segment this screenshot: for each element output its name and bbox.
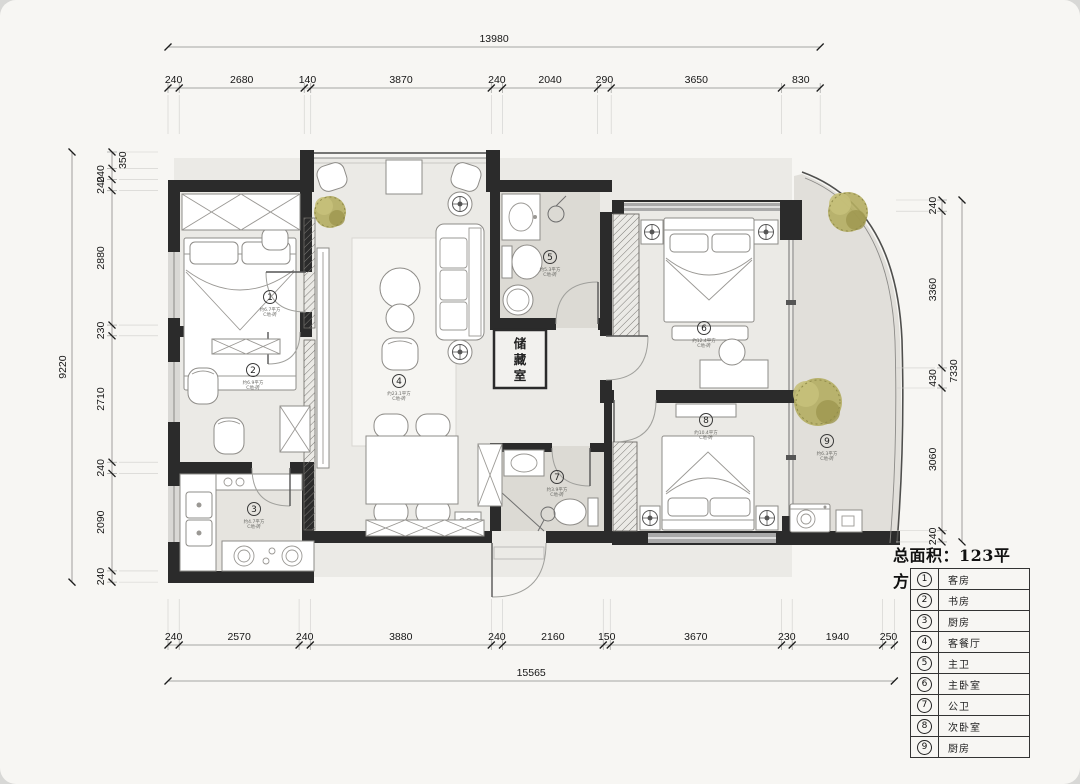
storage-room: 储藏室 xyxy=(494,330,546,388)
svg-text:C地·砖: C地·砖 xyxy=(246,384,260,391)
dim-label: 290 xyxy=(596,74,614,86)
legend-room-number: 6 xyxy=(911,674,939,694)
total-area-wrap-char: 方 xyxy=(893,568,910,758)
sliding-door-handle xyxy=(786,455,796,460)
coffee-table-small-icon xyxy=(386,304,414,332)
svg-text:C地·砖: C地·砖 xyxy=(699,434,713,441)
cabinet-icon xyxy=(280,406,310,452)
svg-text:4: 4 xyxy=(396,377,402,387)
plant-icon xyxy=(828,192,868,232)
svg-text:3: 3 xyxy=(251,505,257,515)
dim-label: 240 xyxy=(95,568,107,586)
svg-text:2: 2 xyxy=(250,366,256,376)
lamp-icon xyxy=(453,197,468,212)
dim-overall-label: 15565 xyxy=(517,667,546,679)
lamp-icon xyxy=(759,225,774,240)
svg-text:C地·砖: C地·砖 xyxy=(392,395,406,402)
dim-label: 3880 xyxy=(389,631,413,643)
svg-text:9: 9 xyxy=(824,437,830,447)
master-wardrobe-icon xyxy=(613,214,639,336)
svg-text:约23.1平方: 约23.1平方 xyxy=(387,390,411,397)
storage-label: 储藏室 xyxy=(513,336,527,383)
svg-text:C地·砖: C地·砖 xyxy=(697,342,711,349)
sliding-door-handle xyxy=(786,300,796,305)
legend: 总面积：123平 方 1客房2书房3厨房4客餐厅5主卫6主卧室7公卫8次卧室9厨… xyxy=(893,542,1053,758)
legend-row: 3厨房 xyxy=(911,611,1029,632)
dim-label: 430 xyxy=(927,369,939,387)
balcony-cabinet-icon xyxy=(836,510,862,532)
floor-plan-page: 储藏室 xyxy=(0,0,1080,784)
svg-text:5: 5 xyxy=(547,253,553,263)
legend-row: 4客餐厅 xyxy=(911,632,1029,653)
legend-room-number: 9 xyxy=(911,737,939,757)
dim-label: 240 xyxy=(296,631,314,643)
dim-label: 2710 xyxy=(95,387,107,411)
dim-label: 150 xyxy=(598,631,616,643)
legend-room-name: 书房 xyxy=(939,593,970,608)
dim-label: 240 xyxy=(165,631,183,643)
legend-room-number: 4 xyxy=(911,632,939,652)
sofa-icon xyxy=(436,224,484,340)
svg-text:8: 8 xyxy=(703,416,709,426)
dim-label: 240 xyxy=(95,459,107,477)
legend-row: 2书房 xyxy=(911,590,1029,611)
legend-room-name: 公卫 xyxy=(939,698,970,713)
dim-label: 350 xyxy=(117,151,129,169)
svg-text:约5.3平方: 约5.3平方 xyxy=(540,266,561,273)
lamp-icon xyxy=(453,345,468,360)
svg-text:C地·砖: C地·砖 xyxy=(550,491,564,498)
desk-chair-icon xyxy=(719,339,745,365)
dim-label: 240 xyxy=(488,631,506,643)
svg-text:C地·砖: C地·砖 xyxy=(247,523,261,530)
toilet-icon xyxy=(502,246,512,278)
legend-room-number: 2 xyxy=(911,590,939,610)
washing-machine-icon xyxy=(790,504,830,532)
svg-text:约12.4平方: 约12.4平方 xyxy=(692,337,716,344)
svg-text:C地·砖: C地·砖 xyxy=(263,311,277,318)
armchair-icon xyxy=(382,338,418,370)
legend-row: 5主卫 xyxy=(911,653,1029,674)
dim-label: 2160 xyxy=(541,631,565,643)
dim-overall-label: 7330 xyxy=(948,359,960,383)
dim-label: 1940 xyxy=(826,631,850,643)
legend-room-number: 8 xyxy=(911,716,939,736)
legend-room-number: 1 xyxy=(911,569,939,589)
legend-room-name: 主卧室 xyxy=(939,677,981,692)
dim-overall-label: 9220 xyxy=(57,355,69,379)
coffee-table-icon xyxy=(380,268,420,308)
bedroom2-wardrobe-icon xyxy=(613,442,637,531)
legend-room-name: 主卫 xyxy=(939,656,970,671)
dining-table-icon xyxy=(366,436,458,504)
tv-cabinet-icon xyxy=(317,248,329,468)
dim-label: 830 xyxy=(792,74,810,86)
cabinet-icon xyxy=(478,444,502,506)
dim-label: 2880 xyxy=(95,246,107,270)
total-area-label: 总面积：123平 xyxy=(893,542,1053,566)
dim-label: 240 xyxy=(488,74,506,86)
dim-label: 2680 xyxy=(230,74,254,86)
svg-text:C地·砖: C地·砖 xyxy=(820,455,834,462)
legend-room-name: 厨房 xyxy=(939,614,970,629)
lamp-icon xyxy=(760,511,775,526)
legend-row: 1客房 xyxy=(911,569,1029,590)
svg-text:7: 7 xyxy=(554,473,560,483)
legend-row: 9厨房 xyxy=(911,737,1029,757)
guest-chair-icon xyxy=(262,228,288,250)
toilet-icon xyxy=(588,498,598,526)
cabinet-icon xyxy=(182,194,300,230)
lamp-icon xyxy=(643,511,658,526)
dim-label: 2040 xyxy=(538,74,562,86)
bay-table-icon xyxy=(386,160,422,194)
legend-room-number: 7 xyxy=(911,695,939,715)
svg-text:1: 1 xyxy=(267,293,273,303)
stove-icon xyxy=(222,541,314,571)
svg-text:约6.7平方: 约6.7平方 xyxy=(260,306,281,313)
dim-label: 240 xyxy=(927,197,939,215)
guest-bed-icon xyxy=(184,238,296,390)
legend-table: 1客房2书房3厨房4客餐厅5主卫6主卧室7公卫8次卧室9厨房 xyxy=(910,568,1030,758)
legend-row: 6主卧室 xyxy=(911,674,1029,695)
dim-label: 2570 xyxy=(227,631,251,643)
svg-text:约3.9平方: 约3.9平方 xyxy=(547,486,568,493)
dim-overall-label: 13980 xyxy=(479,33,508,45)
dim-label: 3060 xyxy=(927,448,939,472)
dim-label: 2090 xyxy=(95,510,107,534)
cabinet-icon xyxy=(366,520,484,536)
svg-text:约4.7平方: 约4.7平方 xyxy=(244,518,265,525)
legend-room-name: 厨房 xyxy=(939,740,970,755)
cabinet-icon xyxy=(212,339,280,354)
legend-room-number: 3 xyxy=(911,611,939,631)
legend-row: 7公卫 xyxy=(911,695,1029,716)
lamp-icon xyxy=(645,225,660,240)
legend-room-number: 5 xyxy=(911,653,939,673)
dim-label: 230 xyxy=(778,631,796,643)
dim-label: 3870 xyxy=(389,74,413,86)
dim-label: 230 xyxy=(95,322,107,340)
legend-row: 8次卧室 xyxy=(911,716,1029,737)
dim-label: 240 xyxy=(165,74,183,86)
legend-room-name: 次卧室 xyxy=(939,719,981,734)
svg-text:约6.9平方: 约6.9平方 xyxy=(243,379,264,386)
basin-icon xyxy=(503,285,533,315)
svg-text:6: 6 xyxy=(701,324,707,334)
dim-label: 240 xyxy=(95,176,107,194)
legend-room-name: 客餐厅 xyxy=(939,635,981,650)
plant-icon xyxy=(314,196,346,228)
dim-label: 3650 xyxy=(685,74,709,86)
dim-label: 3670 xyxy=(684,631,708,643)
total-area-text: 总面积：123平 xyxy=(893,546,1010,565)
legend-room-name: 客房 xyxy=(939,572,970,587)
svg-text:C地·砖: C地·砖 xyxy=(543,271,557,278)
svg-text:约10.4平方: 约10.4平方 xyxy=(694,429,718,436)
dim-label: 3360 xyxy=(927,278,939,302)
dim-label: 140 xyxy=(299,74,317,86)
svg-text:约6.3平方: 约6.3平方 xyxy=(817,450,838,457)
